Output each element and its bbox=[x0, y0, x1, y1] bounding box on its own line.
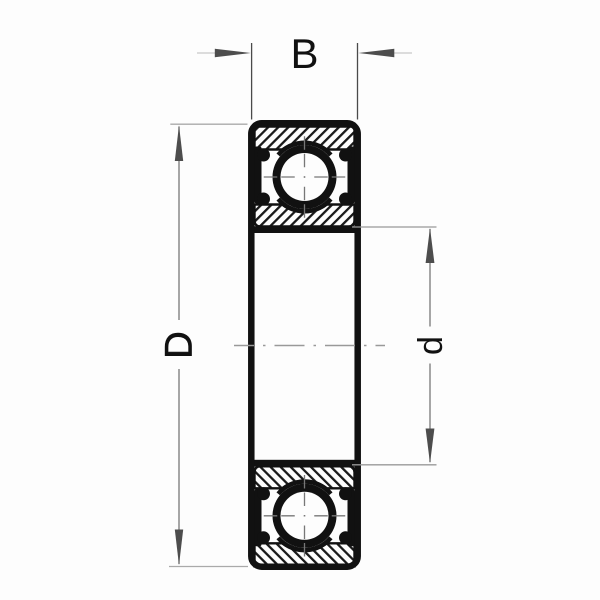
svg-text:d: d bbox=[412, 336, 450, 355]
svg-text:B: B bbox=[290, 30, 318, 77]
svg-text:D: D bbox=[159, 331, 201, 358]
